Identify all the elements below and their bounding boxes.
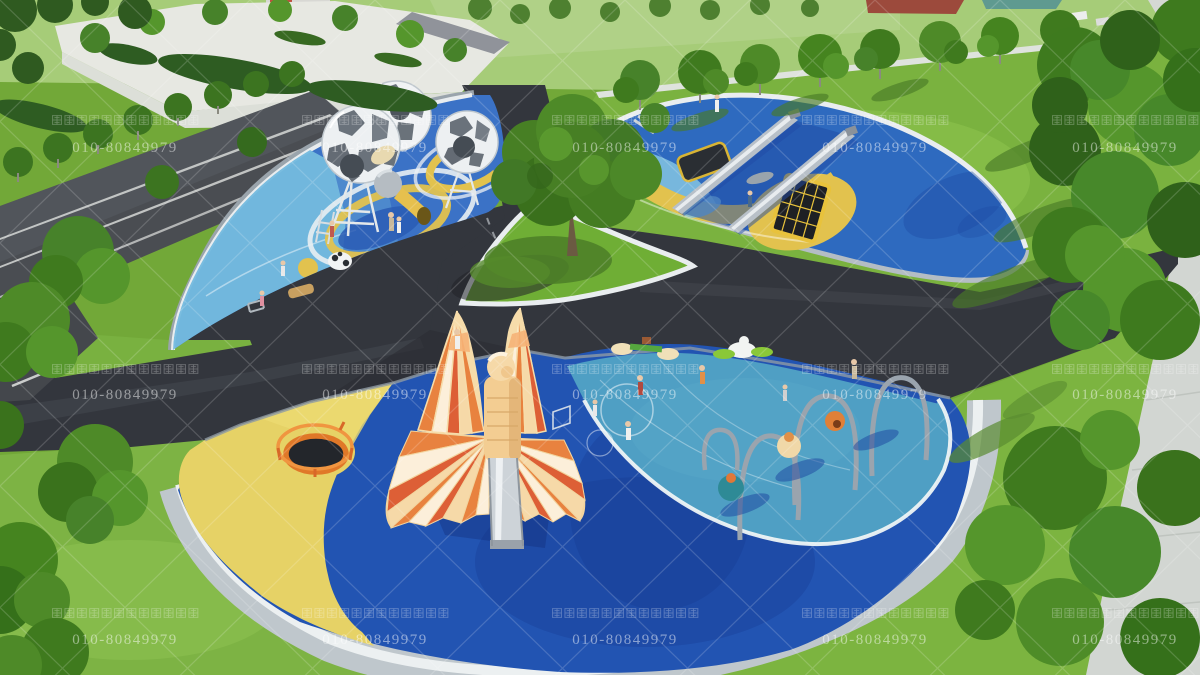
svg-text:010-80849979: 010-80849979 [572, 387, 678, 403]
svg-text:010-80849979: 010-80849979 [572, 140, 678, 156]
svg-text:010-80849979: 010-80849979 [72, 140, 178, 156]
svg-text:010-80849979: 010-80849979 [572, 632, 678, 648]
svg-text:010-80849979: 010-80849979 [822, 387, 928, 403]
svg-text:010-80849979: 010-80849979 [72, 632, 178, 648]
svg-text:010-80849979: 010-80849979 [322, 140, 428, 156]
svg-text:010-80849979: 010-80849979 [1072, 140, 1178, 156]
svg-text:010-80849979: 010-80849979 [1072, 632, 1178, 648]
svg-text:010-80849979: 010-80849979 [322, 387, 428, 403]
svg-text:010-80849979: 010-80849979 [1072, 387, 1178, 403]
svg-text:010-80849979: 010-80849979 [322, 632, 428, 648]
svg-text:010-80849979: 010-80849979 [822, 632, 928, 648]
svg-text:010-80849979: 010-80849979 [72, 387, 178, 403]
svg-text:010-80849979: 010-80849979 [822, 140, 928, 156]
